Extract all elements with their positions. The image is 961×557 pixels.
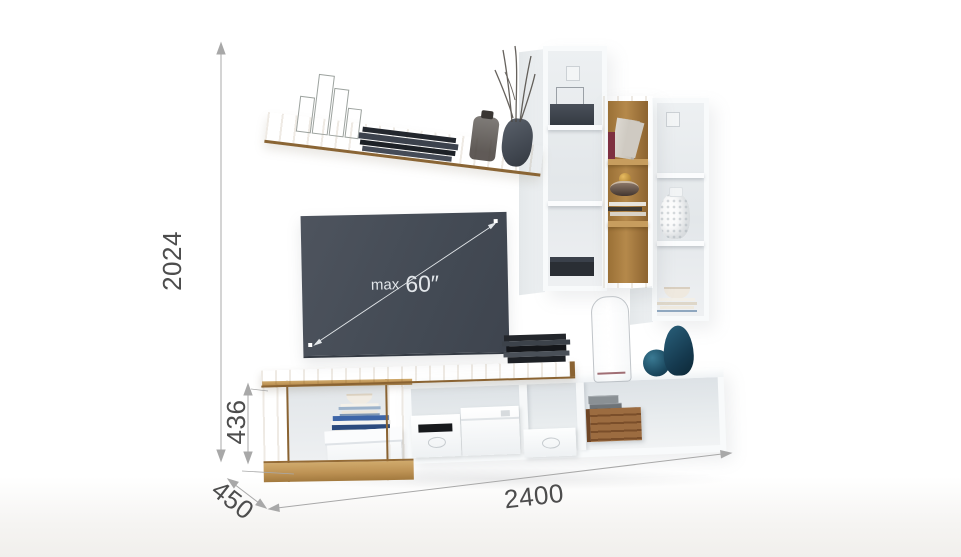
box-oval-label-icon: [542, 437, 560, 449]
storage-bin-dark: [550, 104, 594, 125]
dimension-total-height: 2024: [158, 201, 186, 321]
blue-tall-vase-icon: [663, 325, 695, 376]
wood-crate: [586, 407, 642, 442]
plank-end-cap: [570, 361, 575, 376]
plate-stack-icon: [338, 393, 380, 416]
wall-mount-box-icon: [566, 66, 580, 81]
plate: [659, 298, 695, 301]
black-box: [550, 257, 594, 276]
cabinet-1-shelf: [548, 125, 602, 130]
plate: [660, 306, 694, 309]
cloche-rim-line: [597, 372, 625, 375]
box-oval-label-icon: [428, 437, 446, 449]
book: [508, 356, 566, 364]
textured-vase-icon: [660, 193, 690, 239]
white-storage-box: [461, 406, 521, 456]
book: [609, 202, 646, 206]
oval-label-box: [523, 428, 576, 458]
product-render: max 60″: [0, 0, 961, 557]
cabinet-1-shelf: [548, 201, 602, 206]
wall-cabinet-oak: [603, 96, 653, 288]
cabinet-2-interior: [657, 103, 704, 316]
stand-white-cabinet: [404, 368, 727, 464]
cabinet-2-shelf: [657, 173, 704, 178]
tv-size-value: 60″: [405, 270, 439, 298]
striped-storage-box: [411, 414, 462, 458]
wall-cabinet-white-1: [543, 46, 607, 291]
box-lid-line: [461, 417, 519, 421]
tv-size-label: max 60″: [301, 212, 510, 356]
plank-book-stack-icon: [502, 333, 571, 364]
oak-box-bottom-rail: [264, 459, 414, 483]
stand-oak-box: [262, 379, 414, 483]
cabinet-oak-shelf: [608, 159, 648, 165]
plate-stack-icon: [657, 287, 697, 313]
book: [610, 212, 646, 216]
glass-jar-lid: [481, 110, 494, 119]
tv-screen: max 60″: [301, 212, 510, 358]
wall-mount-box-icon: [666, 112, 680, 127]
book: [608, 207, 642, 211]
cabinet-oak-interior: [608, 101, 648, 283]
box-label-window: [418, 423, 452, 432]
cabinet-1-interior: [548, 51, 602, 286]
red-book-icon: [608, 132, 615, 159]
glass-cloche-icon: [590, 295, 631, 382]
cabinet-oak-shelf: [608, 221, 648, 227]
dimension-stand-height: 436: [222, 372, 250, 472]
tv-size-prefix: max: [371, 276, 400, 294]
plate: [657, 310, 697, 312]
vase-neck: [669, 187, 683, 197]
decorative-bowl-icon: [610, 181, 639, 196]
plate: [657, 302, 697, 305]
glass-jar-icon: [469, 115, 500, 162]
wall-cabinet-white-2: [652, 98, 709, 321]
cabinet-2-shelf: [657, 241, 704, 246]
wall-shelf-group: [265, 112, 544, 174]
book-stack-icon: [608, 202, 647, 218]
box-small-label: [501, 410, 510, 416]
wall-cabinet-white-2-side: [630, 286, 653, 325]
